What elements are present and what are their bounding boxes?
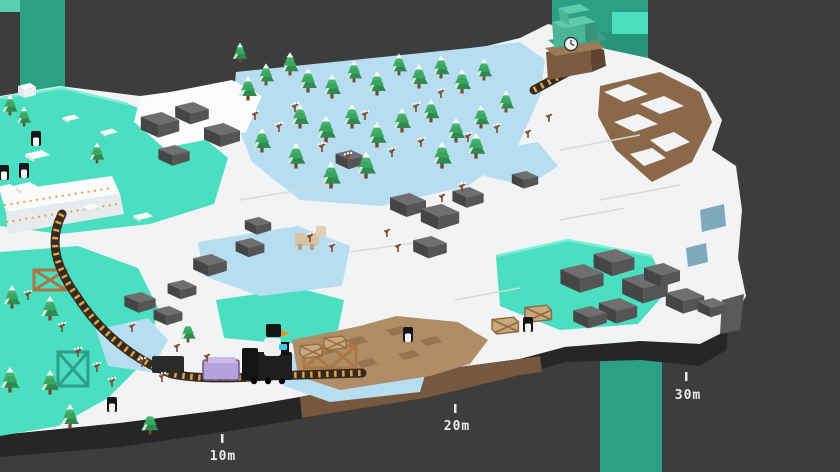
tick-30m [685, 372, 688, 381]
label-20m: 20m [444, 419, 470, 434]
held-item [279, 344, 287, 350]
label-10m: 10m [210, 449, 236, 464]
crate [300, 344, 322, 358]
purple-wagon [203, 357, 239, 380]
penguin [19, 163, 29, 178]
penguin [403, 327, 413, 342]
penguin [107, 397, 117, 412]
penguin [0, 165, 9, 180]
game-screenshot: 10m 20m 30m [0, 0, 840, 472]
tick-10m [221, 434, 224, 443]
penguin [523, 317, 533, 332]
tick-20m [454, 404, 457, 413]
dark-wagon [152, 356, 184, 373]
crate [492, 317, 518, 334]
station-clock [565, 38, 578, 51]
crate [324, 336, 346, 350]
game-viewport[interactable]: 10m 20m 30m [0, 0, 840, 472]
penguin [31, 131, 41, 146]
label-30m: 30m [675, 388, 701, 403]
